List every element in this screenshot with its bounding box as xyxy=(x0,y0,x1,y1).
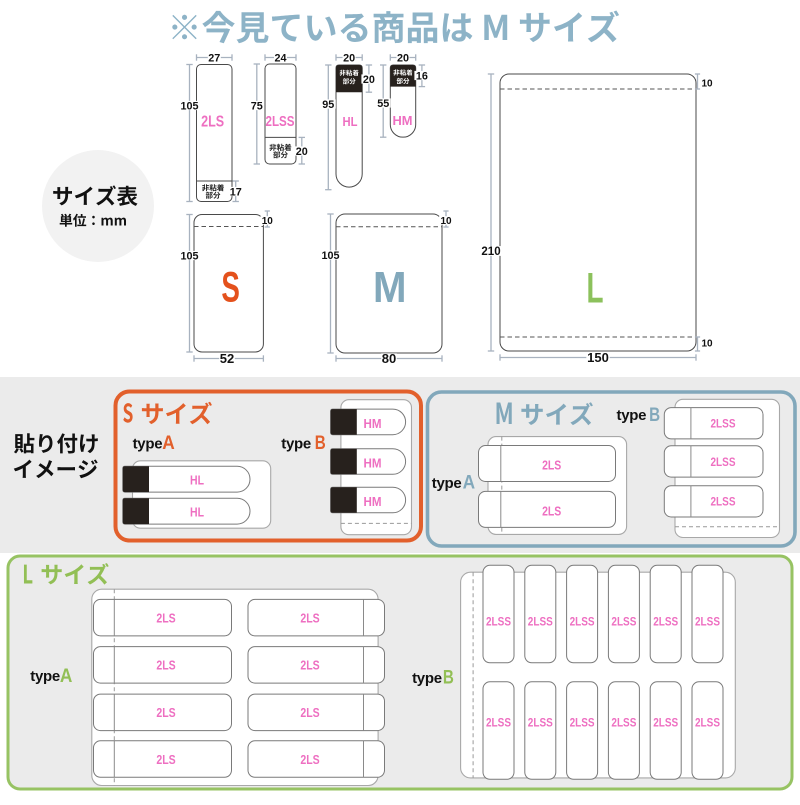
svg-text:2LSS: 2LSS xyxy=(653,616,678,628)
svg-text:10: 10 xyxy=(701,339,713,350)
svg-text:2LSS: 2LSS xyxy=(486,616,511,628)
svg-text:2LS: 2LS xyxy=(300,705,319,720)
svg-text:HM: HM xyxy=(364,416,382,431)
svg-text:HM: HM xyxy=(364,456,382,471)
svg-text:10: 10 xyxy=(701,79,713,90)
svg-text:55: 55 xyxy=(377,98,389,110)
svg-text:2LSS: 2LSS xyxy=(570,616,595,628)
svg-text:20: 20 xyxy=(296,146,308,158)
svg-text:HL: HL xyxy=(190,472,204,487)
svg-text:2LSS: 2LSS xyxy=(695,718,720,730)
svg-text:20: 20 xyxy=(397,52,409,64)
svg-text:24: 24 xyxy=(274,52,286,64)
svg-text:B: B xyxy=(443,667,454,689)
svg-text:2LSS: 2LSS xyxy=(611,718,636,730)
svg-text:B: B xyxy=(315,432,326,454)
svg-text:B: B xyxy=(649,404,660,426)
svg-text:150: 150 xyxy=(587,350,609,365)
svg-text:2LSS: 2LSS xyxy=(528,718,553,730)
svg-text:HL: HL xyxy=(190,504,204,519)
svg-text:HL: HL xyxy=(343,114,358,129)
svg-text:2LS: 2LS xyxy=(156,705,175,720)
svg-text:2LSS: 2LSS xyxy=(266,113,295,130)
svg-text:2LSS: 2LSS xyxy=(486,718,511,730)
svg-text:A: A xyxy=(463,472,476,494)
svg-text:10: 10 xyxy=(262,216,274,227)
svg-text:type: type xyxy=(133,435,163,452)
svg-text:52: 52 xyxy=(220,351,234,366)
svg-text:type: type xyxy=(30,668,60,685)
svg-text:M: M xyxy=(373,263,407,312)
svg-text:2LS: 2LS xyxy=(300,658,319,673)
svg-text:A: A xyxy=(162,432,175,454)
svg-text:10: 10 xyxy=(440,216,452,227)
svg-text:type: type xyxy=(281,435,311,452)
svg-text:type: type xyxy=(617,407,647,424)
svg-text:16: 16 xyxy=(416,70,428,82)
svg-text:2LSS: 2LSS xyxy=(570,718,595,730)
svg-text:HM: HM xyxy=(364,494,382,509)
svg-text:20: 20 xyxy=(343,52,355,64)
svg-text:2LSS: 2LSS xyxy=(711,457,736,469)
svg-text:2LS: 2LS xyxy=(156,752,175,767)
svg-text:20: 20 xyxy=(363,74,375,86)
svg-text:HM: HM xyxy=(393,113,413,128)
svg-text:2LSS: 2LSS xyxy=(528,616,553,628)
svg-text:75: 75 xyxy=(251,100,263,112)
svg-text:2LS: 2LS xyxy=(300,610,319,625)
svg-text:105: 105 xyxy=(180,250,198,262)
svg-text:2LS: 2LS xyxy=(542,458,561,473)
svg-text:95: 95 xyxy=(322,99,334,111)
svg-text:105: 105 xyxy=(180,100,198,112)
svg-text:2LSS: 2LSS xyxy=(695,616,720,628)
svg-text:210: 210 xyxy=(481,246,500,258)
svg-text:27: 27 xyxy=(208,52,220,64)
svg-text:L: L xyxy=(587,265,604,313)
svg-text:type: type xyxy=(432,475,462,492)
svg-text:17: 17 xyxy=(230,186,242,198)
svg-text:A: A xyxy=(60,665,73,687)
svg-text:105: 105 xyxy=(321,250,339,262)
svg-text:2LSS: 2LSS xyxy=(653,718,678,730)
svg-text:80: 80 xyxy=(382,351,396,366)
svg-text:2LSS: 2LSS xyxy=(611,616,636,628)
svg-text:2LS: 2LS xyxy=(156,658,175,673)
svg-text:2LS: 2LS xyxy=(300,752,319,767)
svg-text:S: S xyxy=(221,264,240,312)
svg-text:2LS: 2LS xyxy=(201,114,224,131)
svg-text:type: type xyxy=(412,670,442,687)
svg-text:2LS: 2LS xyxy=(156,610,175,625)
svg-text:2LS: 2LS xyxy=(542,503,561,518)
svg-text:2LSS: 2LSS xyxy=(711,497,736,509)
svg-text:2LSS: 2LSS xyxy=(711,419,736,431)
